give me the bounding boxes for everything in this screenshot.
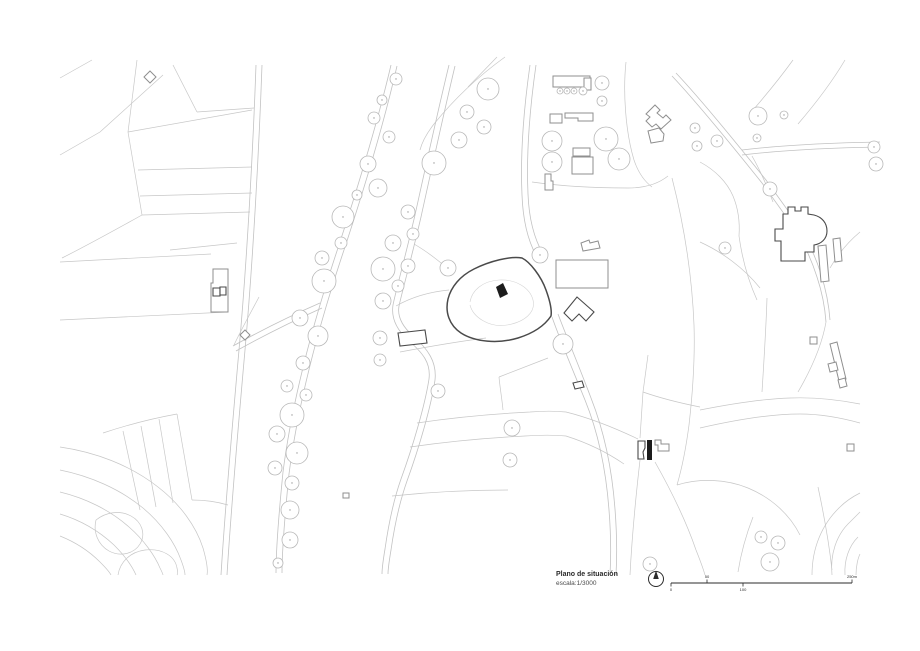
building-outline-dark [213, 288, 220, 296]
field-boundary-line [700, 162, 739, 236]
tree-center-dot [694, 127, 695, 128]
tree-center-dot [379, 359, 380, 360]
tree-center-dot [397, 285, 398, 286]
tree-center-dot [377, 187, 378, 188]
field-boundary-line [818, 487, 832, 570]
field-boundary-line [128, 132, 142, 215]
building-outline [838, 378, 847, 388]
field-boundary-line [392, 490, 508, 496]
tree-center-dot [323, 280, 324, 281]
tree-center-dot [696, 145, 697, 146]
field-boundary-line [798, 322, 826, 392]
tree-center-dot [601, 100, 602, 101]
tree-center-dot [305, 394, 306, 395]
tree-center-dot [342, 216, 343, 217]
tree-center-dot [769, 561, 770, 562]
field-boundary-line [566, 436, 624, 464]
tree-center-dot [274, 467, 275, 468]
building-outline [828, 362, 838, 372]
building-outline-dark [638, 441, 645, 459]
road-line [522, 65, 537, 257]
tree-center-dot [573, 90, 574, 91]
tree-center-dot [509, 459, 510, 460]
field-boundary-line [625, 62, 652, 187]
building-outline [240, 330, 250, 340]
building-outline-dark [398, 330, 427, 346]
building-outline [648, 128, 664, 143]
tree-center-dot [286, 385, 287, 386]
tree-center-dot [340, 242, 341, 243]
plan-title: Plano de situación [556, 571, 618, 579]
building-outline [545, 174, 553, 190]
tree-center-dot [562, 343, 563, 344]
road-line [672, 76, 826, 322]
tree-center-dot [756, 137, 757, 138]
tree-center-dot [873, 146, 874, 147]
site-plan-sheet: { "title_block": { "title": "Plano de si… [0, 0, 920, 651]
tree-center-dot [407, 211, 408, 212]
field-boundary-line [738, 517, 753, 572]
tree-center-dot [356, 194, 357, 195]
tree-center-dot [458, 139, 459, 140]
field-boundary-line [417, 411, 566, 423]
field-boundary-line [142, 212, 250, 215]
field-boundary-line [410, 435, 566, 447]
tree-center-dot [487, 88, 488, 89]
field-boundary-line [672, 178, 694, 485]
tree-center-dot [373, 117, 374, 118]
site-plan-drawing: 050100250m [0, 0, 920, 651]
field-boundary-line [499, 377, 503, 410]
tree-center-dot [382, 300, 383, 301]
tree-center-dot [582, 90, 583, 91]
tree-center-dot [289, 509, 290, 510]
tree-center-dot [317, 335, 318, 336]
road-line [227, 65, 262, 575]
tree-center-dot [407, 265, 408, 266]
tree-center-dot [875, 163, 876, 164]
building-outline-dark [573, 381, 584, 389]
field-boundary-line [128, 60, 137, 132]
tree-center-dot [769, 188, 770, 189]
terrain-contour-line [60, 470, 185, 575]
field-boundary-line [140, 193, 252, 196]
road-line [552, 317, 611, 575]
field-boundary-line [60, 75, 163, 155]
tree-center-dot [601, 82, 602, 83]
field-boundary-line [159, 419, 173, 503]
tree-center-dot [277, 562, 278, 563]
tree-center-dot [757, 115, 758, 116]
terrain-contour-line [60, 536, 111, 575]
field-boundary-line [630, 460, 640, 575]
road-line [528, 65, 543, 254]
field-boundary-line [700, 414, 860, 428]
tree-center-dot [291, 414, 292, 415]
building-outline [810, 337, 817, 344]
scale-bar-label: 250m [847, 574, 858, 579]
tree-center-dot [296, 452, 297, 453]
scale-bar-label: 50 [705, 574, 710, 579]
project-building [496, 283, 508, 298]
tree-center-dot [321, 257, 322, 258]
tree-center-dot [433, 162, 434, 163]
tree-center-dot [379, 337, 380, 338]
field-boundary-line [677, 480, 800, 535]
tree-center-dot [605, 138, 606, 139]
building-outline [556, 260, 608, 288]
terrain-contour-line [812, 493, 860, 575]
field-boundary-line [128, 110, 252, 132]
field-boundary-line [499, 358, 548, 377]
tree-center-dot [618, 158, 619, 159]
tree-center-dot [551, 161, 552, 162]
building-outline [655, 440, 669, 451]
field-boundary-line [762, 298, 767, 392]
tree-center-dot [466, 111, 467, 112]
tree-center-dot [382, 268, 383, 269]
tree-center-dot [511, 427, 512, 428]
tree-center-dot [539, 254, 540, 255]
tree-center-dot [276, 433, 277, 434]
tree-center-dot [566, 90, 567, 91]
field-boundary-line [103, 414, 177, 433]
field-boundary-line [62, 215, 142, 258]
tree-center-dot [367, 163, 368, 164]
building-outline [581, 240, 600, 251]
tree-center-dot [388, 136, 389, 137]
building-outline-dark [220, 287, 226, 295]
field-boundary-line [60, 254, 211, 262]
tree-center-dot [412, 233, 413, 234]
field-boundary-line [141, 426, 156, 507]
building-outline [565, 113, 593, 121]
tree-center-dot [395, 78, 396, 79]
building-filled [647, 440, 652, 460]
field-boundary-line [177, 414, 192, 500]
field-boundary-line [640, 355, 648, 438]
building-outline [572, 157, 593, 174]
field-boundary-line [170, 243, 237, 250]
field-boundary-line [396, 290, 449, 306]
tree-center-dot [302, 362, 303, 363]
tree-center-dot [437, 390, 438, 391]
tree-center-dot [299, 317, 300, 318]
field-boundary-line [655, 462, 705, 575]
road-line [221, 65, 256, 575]
tree-center-dot [392, 242, 393, 243]
building-outline [550, 114, 562, 123]
field-boundary-line [173, 65, 197, 112]
plan-scale-label: escala:1/3000 [556, 580, 596, 588]
tree-center-dot [483, 126, 484, 127]
building-outline [818, 245, 829, 282]
road-line [388, 66, 455, 574]
field-boundary-line [753, 60, 793, 110]
tree-center-dot [381, 99, 382, 100]
field-boundary-line [192, 500, 228, 505]
field-boundary-line [138, 167, 252, 170]
tree-center-dot [551, 140, 552, 141]
road-line [742, 142, 880, 150]
field-boundary-line [566, 412, 638, 439]
field-boundary-line [739, 236, 757, 300]
terrain-contour-line [60, 447, 207, 575]
tree-center-dot [783, 114, 784, 115]
building-outline [343, 493, 349, 498]
building-outline-dark [564, 297, 594, 321]
field-boundary-line [700, 398, 860, 410]
scale-bar-label: 0 [670, 587, 673, 592]
site-boundary [447, 258, 551, 342]
terrain-contour-line [832, 512, 860, 575]
tree-center-dot [724, 247, 725, 248]
terrain-contour-line [856, 554, 860, 575]
field-boundary-line [60, 312, 228, 320]
field-boundary-line [60, 60, 92, 78]
tree-center-dot [777, 542, 778, 543]
field-boundary-line [798, 60, 845, 124]
building-outline [573, 148, 590, 156]
building-outline [144, 71, 156, 83]
building-outline [646, 105, 671, 129]
tree-center-dot [289, 539, 290, 540]
road-line [742, 147, 880, 155]
field-boundary-line [123, 431, 140, 510]
tree-center-dot [447, 267, 448, 268]
tree-center-dot [649, 563, 650, 564]
building-outline [833, 238, 842, 262]
terrain-contour-line [60, 492, 163, 575]
scale-bar-label: 100 [740, 587, 747, 592]
tree-center-dot [716, 140, 717, 141]
building-outline [847, 444, 854, 451]
tree-center-dot [559, 90, 560, 91]
tree-center-dot [291, 482, 292, 483]
building-outline [830, 342, 846, 381]
tree-center-dot [760, 536, 761, 537]
